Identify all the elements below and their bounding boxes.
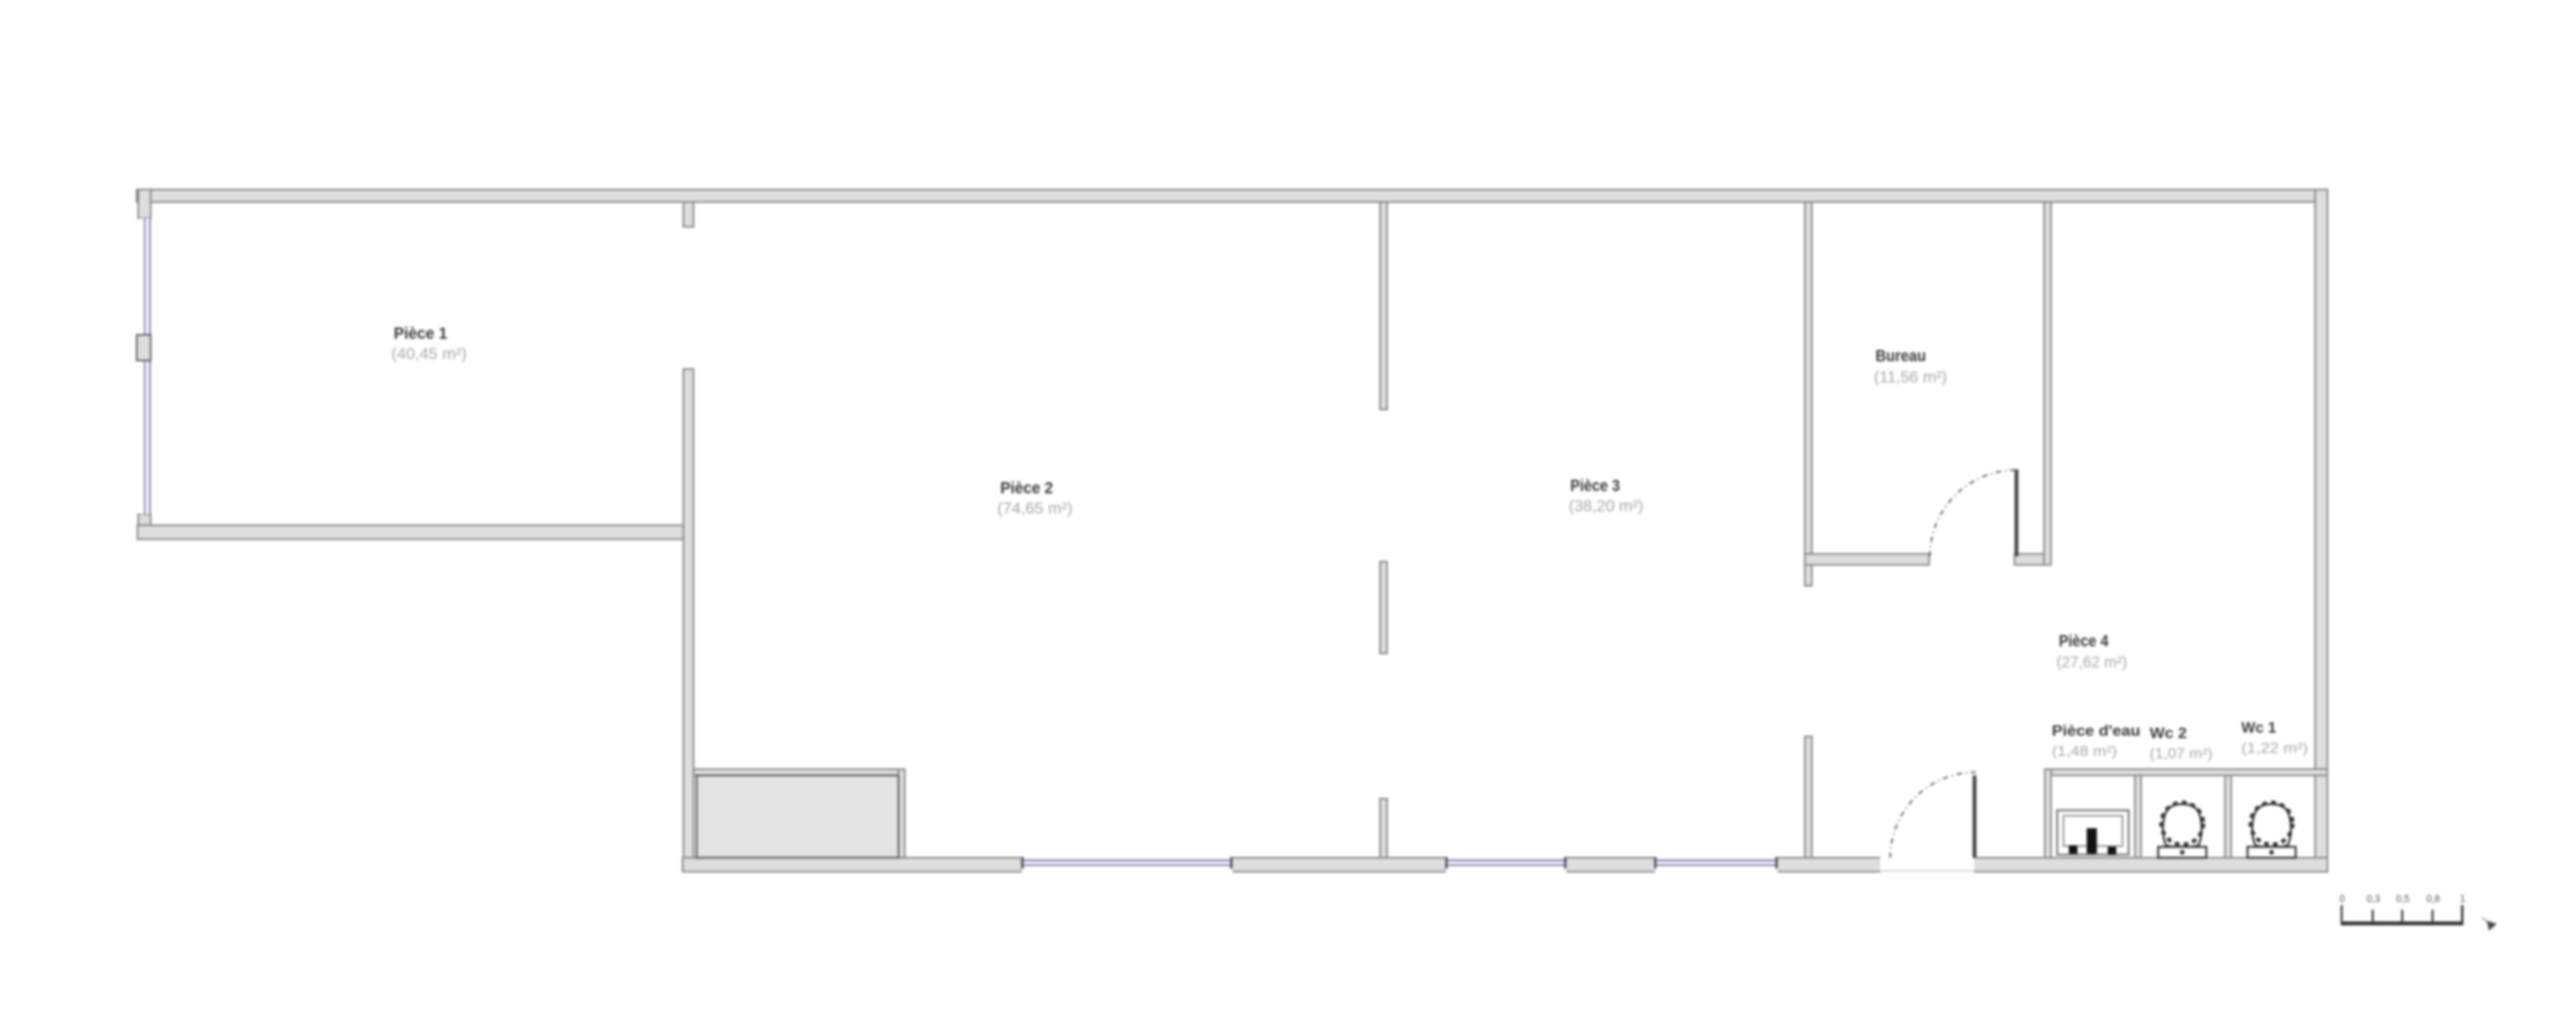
svg-text:0,8: 0,8: [2426, 893, 2439, 904]
svg-text:(74,65 m²): (74,65 m²): [997, 500, 1072, 517]
svg-text:Pièce 4: Pièce 4: [2059, 632, 2108, 650]
svg-text:Pièce 1: Pièce 1: [394, 325, 447, 343]
svg-text:Pièce 3: Pièce 3: [1570, 477, 1620, 495]
svg-text:Pièce 2: Pièce 2: [1000, 479, 1053, 497]
svg-text:(1,22 m²): (1,22 m²): [2241, 740, 2308, 756]
svg-text:0: 0: [2340, 893, 2345, 904]
svg-text:Pièce d'eau: Pièce d'eau: [2052, 723, 2140, 740]
svg-text:(1,07 m²): (1,07 m²): [2150, 746, 2213, 761]
svg-text:(1,48 m²): (1,48 m²): [2052, 744, 2117, 759]
svg-text:0,5: 0,5: [2396, 893, 2409, 904]
svg-text:Wc 2: Wc 2: [2150, 726, 2187, 742]
svg-text:Wc 1: Wc 1: [2241, 720, 2276, 737]
svg-text:(40,45 m²): (40,45 m²): [391, 346, 467, 363]
svg-text:(38,20 m²): (38,20 m²): [1569, 498, 1643, 515]
svg-text:1: 1: [2460, 893, 2466, 904]
svg-text:0,3: 0,3: [2366, 893, 2380, 904]
svg-text:(11,56 m²): (11,56 m²): [1874, 369, 1947, 386]
svg-text:(27,62 m²): (27,62 m²): [2056, 654, 2127, 671]
svg-text:Bureau: Bureau: [1876, 347, 1926, 365]
